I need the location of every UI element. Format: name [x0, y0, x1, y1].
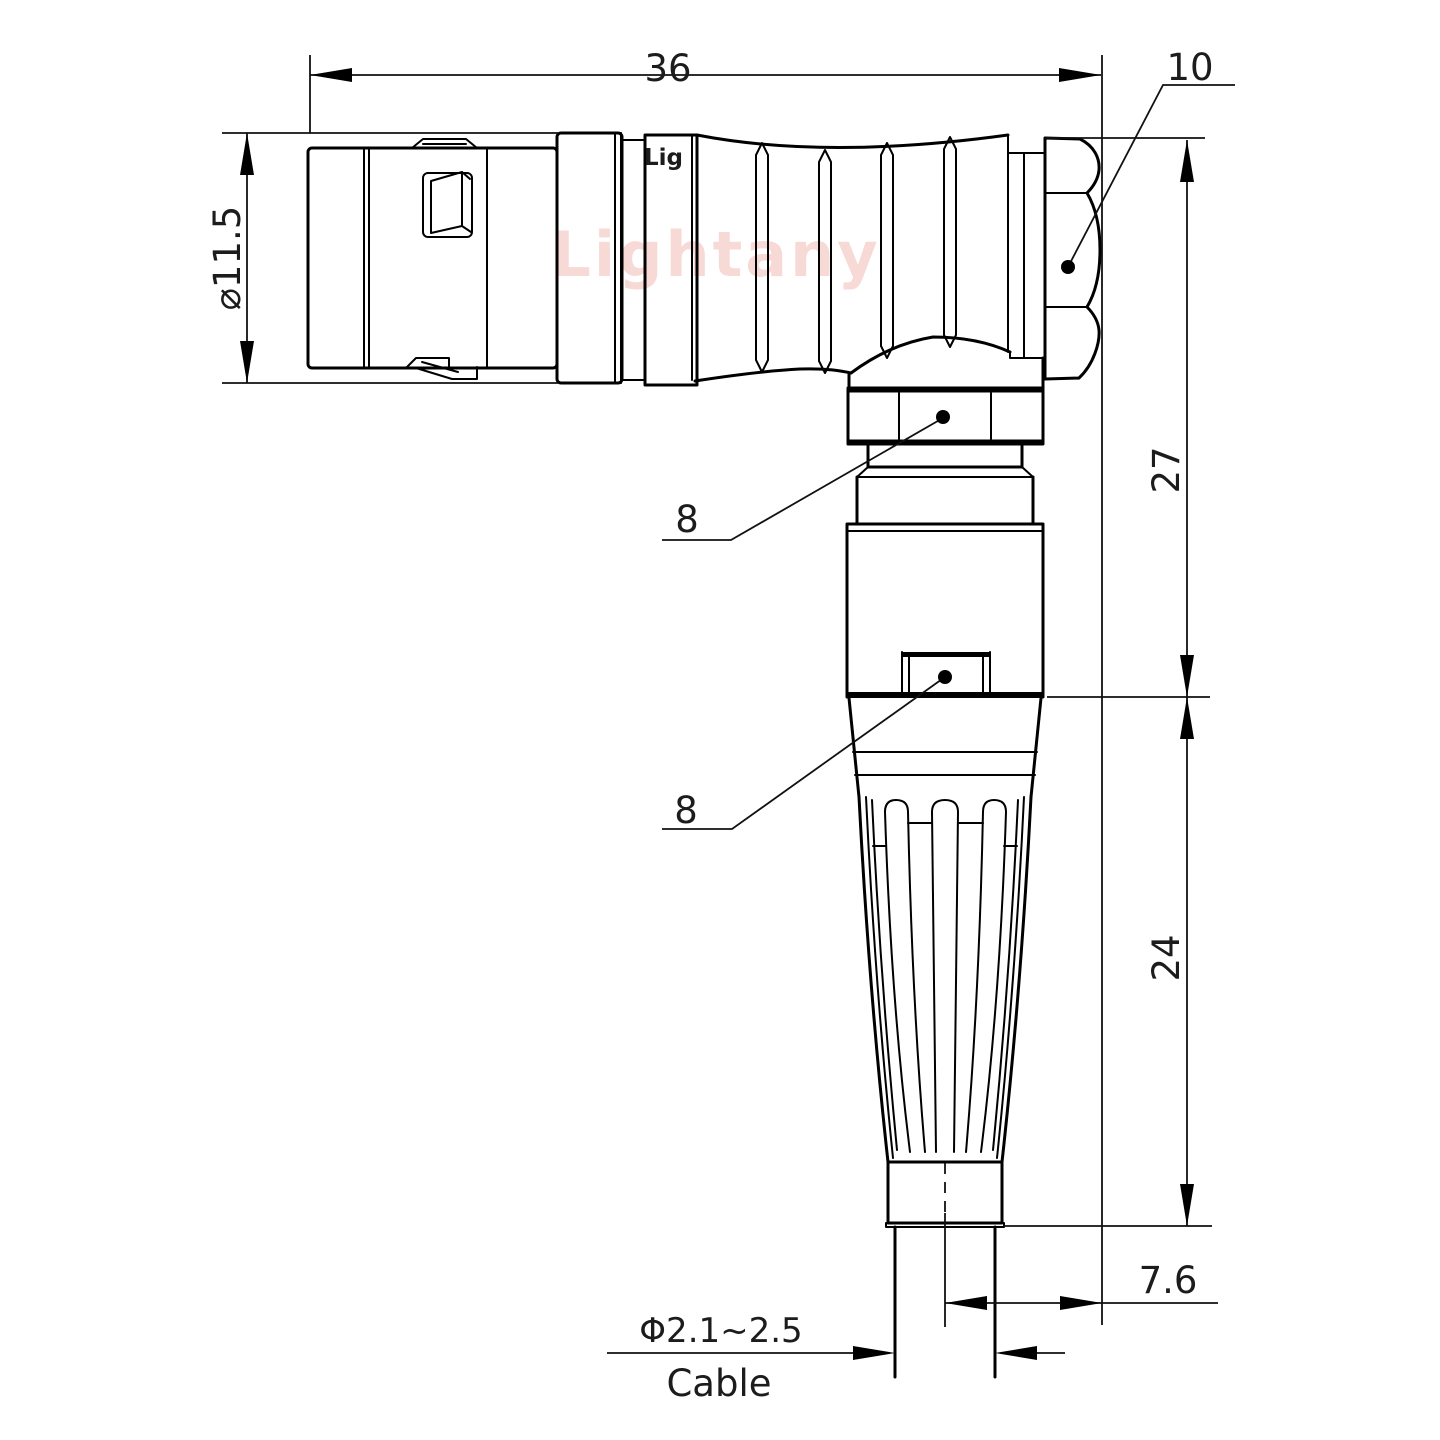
dim-label-24: 24	[1145, 934, 1188, 981]
leader-back-nut: 10	[1061, 46, 1235, 274]
dim-label-36: 36	[644, 47, 691, 90]
dim-lower-height: 24	[1004, 697, 1212, 1226]
knurl-band-3	[881, 143, 893, 358]
dim-label-cable-diameter: Φ2.1~2.5	[639, 1311, 802, 1351]
strain-relief	[859, 797, 1031, 1162]
knurl-band-4	[944, 137, 956, 347]
dim-label-10: 10	[1166, 46, 1213, 89]
dim-label-7-6: 7.6	[1139, 1259, 1198, 1302]
shell-engraving: Lig	[644, 145, 683, 171]
dim-label-11-5: ⌀11.5	[206, 206, 249, 311]
elbow-assembly	[847, 358, 1043, 698]
connector-technical-drawing: Lightany Lig	[0, 0, 1440, 1440]
elbow-transition	[851, 337, 1010, 373]
key-window	[423, 172, 472, 237]
dim-cable-offset: 7.6	[945, 1259, 1218, 1310]
dim-label-27: 27	[1145, 446, 1188, 493]
dim-front-diameter: ⌀11.5	[206, 133, 558, 383]
dim-label-8-upper: 8	[675, 498, 699, 541]
leader-jam-nut: 8	[662, 410, 950, 541]
cable-gland	[849, 698, 1041, 797]
drawing-canvas: Lightany Lig	[0, 0, 1440, 1440]
front-coupling-barrel	[308, 139, 557, 379]
dim-label-8-lower: 8	[674, 789, 698, 832]
dim-label-cable: Cable	[666, 1362, 771, 1405]
dim-upper-height: 27	[1045, 138, 1210, 697]
